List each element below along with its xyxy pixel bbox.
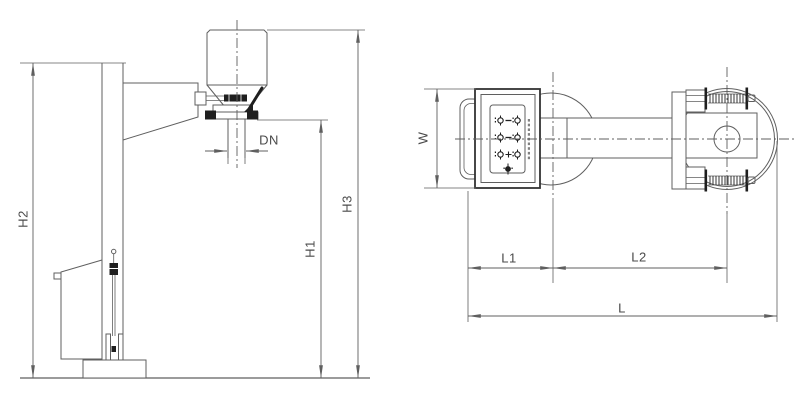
drawing-linework xyxy=(0,0,800,417)
base-plate xyxy=(83,360,146,378)
front-view-dimensions xyxy=(20,30,365,378)
dim-label-l2: L2 xyxy=(631,251,646,264)
dim-label-h2: H2 xyxy=(17,210,30,228)
support-arm xyxy=(123,83,198,140)
clamp-rod-assembly xyxy=(106,249,123,360)
beam xyxy=(536,118,672,158)
dim-label-dn: DN xyxy=(259,134,279,147)
dim-label-h1: H1 xyxy=(304,240,317,258)
dim-label-l1: L1 xyxy=(501,252,516,265)
mounting-plate xyxy=(672,90,705,189)
engineering-drawing-canvas: H2 H1 H3 DN W L1 L2 L xyxy=(0,0,800,417)
feeder-nozzle xyxy=(195,92,247,105)
control-box xyxy=(54,260,102,359)
front-view xyxy=(20,20,370,378)
discharge-spout xyxy=(228,119,245,158)
control-panel xyxy=(475,89,540,188)
dim-label-w: W xyxy=(417,132,430,145)
dim-label-h3: H3 xyxy=(341,195,354,213)
dim-label-l: L xyxy=(618,302,626,315)
